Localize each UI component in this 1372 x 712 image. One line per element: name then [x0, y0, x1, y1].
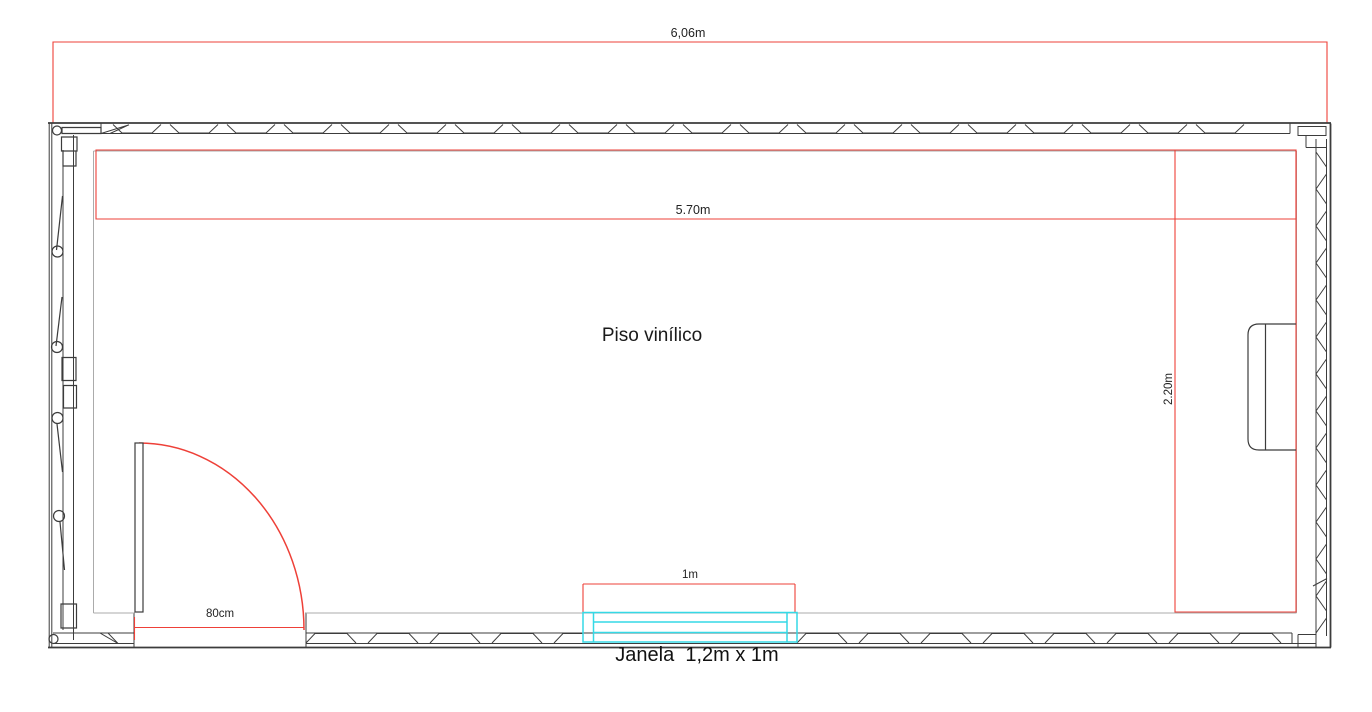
door-leaf	[135, 443, 143, 612]
floor-material-label: Piso vinílico	[552, 325, 752, 347]
interior-dimension-lines	[96, 150, 1296, 612]
interior-depth-dimension-label: 2.20m	[1163, 359, 1177, 419]
corrugation-pattern	[1316, 152, 1327, 633]
window-caption: Janela 1,2m x 1m	[547, 644, 847, 667]
interior-outline	[94, 151, 1297, 613]
floor-plan-drawing	[0, 0, 1372, 712]
door-width-dimension-label: 80cm	[170, 608, 270, 620]
overall-width-dimension-label: 6,06m	[588, 26, 788, 40]
overall-dimension-bracket	[53, 42, 1327, 123]
right-wall-unit	[1248, 324, 1296, 450]
interior-width-dimension-label: 5.70m	[593, 203, 793, 217]
corrugation-pattern	[113, 125, 1244, 134]
floor-plan-page: 6,06m 5.70m 2.20m 80cm 1m Janela 1,2m x …	[0, 0, 1372, 712]
window-width-dimension-label: 1m	[650, 569, 730, 581]
